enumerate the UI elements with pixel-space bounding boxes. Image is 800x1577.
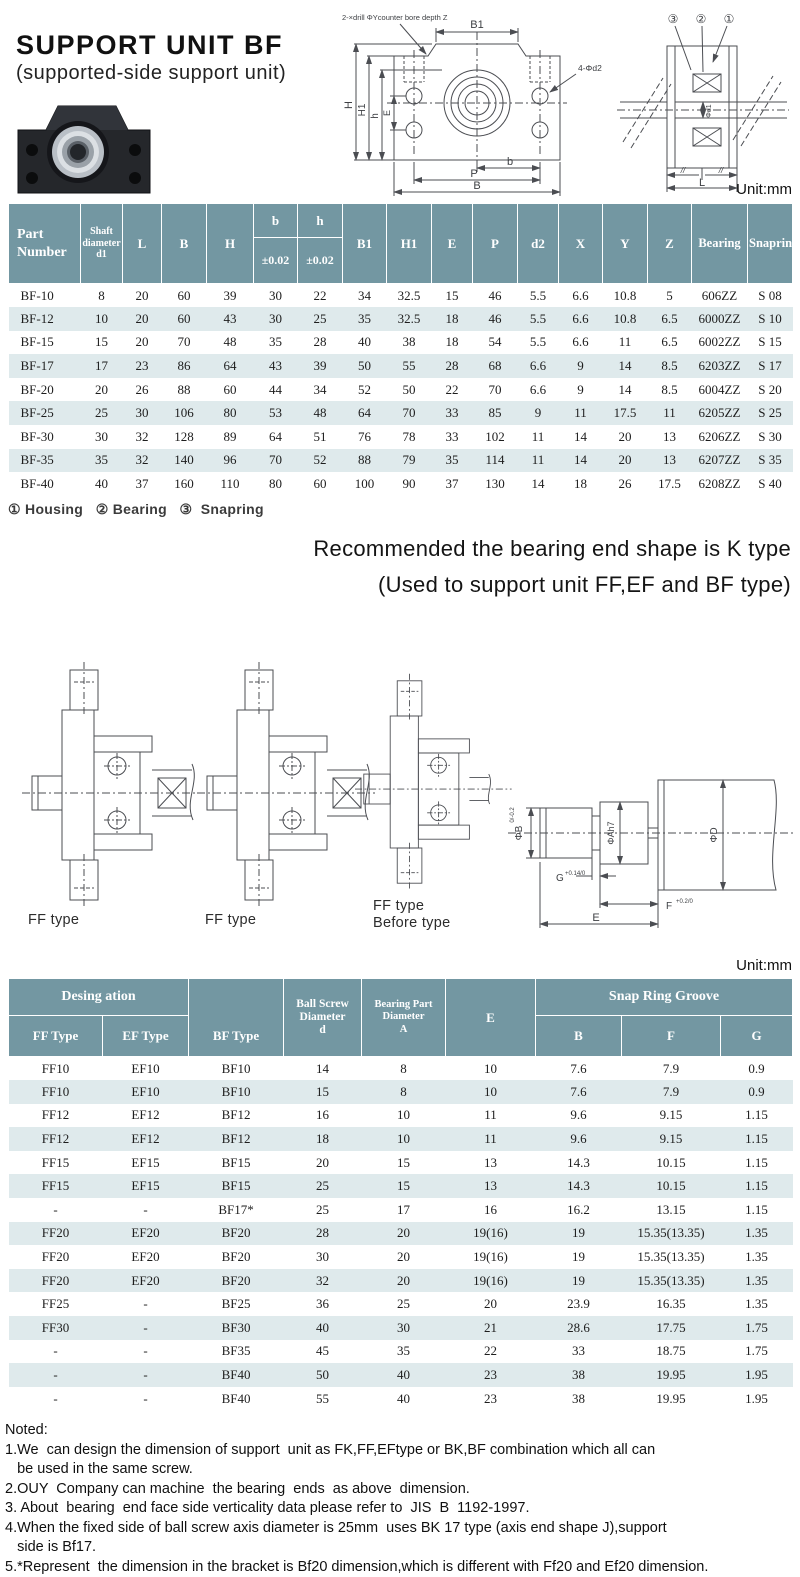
table-cell: 43: [254, 354, 298, 378]
table-cell: 50: [284, 1363, 362, 1387]
table-cell: 14: [603, 354, 648, 378]
col-groove-g: G: [721, 1016, 793, 1057]
page-subtitle: (supported-side support unit): [16, 62, 286, 85]
table-cell: 54: [473, 331, 518, 355]
table-cell: 1.95: [721, 1387, 793, 1411]
table-cell: 30: [284, 1245, 362, 1269]
table-cell: 19.95: [622, 1387, 721, 1411]
table-cell: 76: [343, 425, 387, 449]
table-row: FF12EF12BF121610119.69.151.15: [9, 1104, 793, 1128]
table-cell: FF20: [9, 1222, 103, 1246]
table-cell: BF-17: [9, 354, 81, 378]
table-cell: 15: [362, 1174, 446, 1198]
hatch-mark-left: //: [680, 166, 686, 175]
table-cell: 19: [536, 1245, 622, 1269]
dim-label-phi-a: ΦAh7: [606, 821, 616, 844]
table-cell: 19(16): [446, 1222, 536, 1246]
ff-type-label-1: FF type: [28, 912, 79, 929]
drill-note: 2-×drill ΦYcounter bore depth Z: [342, 13, 448, 22]
col-b-tolerance: ±0.02: [254, 238, 298, 284]
table-row: FF12EF12BF121810119.69.151.15: [9, 1127, 793, 1151]
table-cell: FF10: [9, 1057, 103, 1081]
table-cell: 33: [536, 1340, 622, 1364]
table-cell: 19(16): [446, 1245, 536, 1269]
table-cell: 14: [603, 378, 648, 402]
col-b-small: b: [254, 204, 298, 238]
table-cell: BF-15: [9, 331, 81, 355]
recommendation-line-1: Recommended the bearing end shape is K t…: [0, 531, 791, 567]
table-cell: 55: [284, 1387, 362, 1411]
table-cell: 15: [432, 284, 473, 308]
table-cell: FF10: [9, 1080, 103, 1104]
table-cell: 6206ZZ: [692, 425, 748, 449]
table-cell: 606ZZ: [692, 284, 748, 308]
table-cell: 43: [207, 307, 254, 331]
table-cell: S 10: [748, 307, 793, 331]
col-p: P: [473, 204, 518, 284]
table-cell: 0.9: [721, 1080, 793, 1104]
table-row: --BF17*25171616.213.151.15: [9, 1198, 793, 1222]
table-cell: 7.9: [622, 1057, 721, 1081]
table-cell: 70: [473, 378, 518, 402]
table-cell: 64: [254, 425, 298, 449]
table-cell: 88: [162, 378, 207, 402]
dim-label-p: P: [470, 168, 477, 180]
table-cell: EF20: [103, 1269, 189, 1293]
table-cell: 22: [432, 378, 473, 402]
table-cell: 20: [603, 449, 648, 473]
table-cell: 44: [254, 378, 298, 402]
table-cell: 1.15: [721, 1151, 793, 1175]
table-cell: 20: [123, 307, 162, 331]
table-cell: 20: [123, 284, 162, 308]
table-cell: 130: [473, 472, 518, 496]
col-e: E: [432, 204, 473, 284]
table-cell: 9.15: [622, 1104, 721, 1128]
recommendation-text: Recommended the bearing end shape is K t…: [0, 531, 791, 603]
table-cell: 48: [207, 331, 254, 355]
table-row: FF10EF10BF10158107.67.90.9: [9, 1080, 793, 1104]
dim-label-d1: Φd1: [706, 104, 713, 117]
table-cell: EF12: [103, 1127, 189, 1151]
dim-label-g: G: [556, 873, 564, 884]
table-cell: 14.3: [536, 1174, 622, 1198]
table-row: FF25-BF2536252023.916.351.35: [9, 1292, 793, 1316]
table-cell: 40: [284, 1316, 362, 1340]
table-cell: 15: [284, 1080, 362, 1104]
table-cell: BF35: [189, 1340, 284, 1364]
table-cell: 37: [432, 472, 473, 496]
table-cell: 70: [254, 449, 298, 473]
table-cell: EF12: [103, 1104, 189, 1128]
table-cell: BF40: [189, 1363, 284, 1387]
table-cell: 36: [284, 1292, 362, 1316]
col-l: L: [123, 204, 162, 284]
col-y: Y: [603, 204, 648, 284]
table-cell: 32: [123, 449, 162, 473]
table-cell: S 40: [748, 472, 793, 496]
table-row: BF-4040371601108060100903713014182617.56…: [9, 472, 793, 496]
table-cell: 11: [559, 401, 603, 425]
col-ff-type: FF Type: [9, 1016, 103, 1057]
table-cell: 5.5: [518, 307, 559, 331]
table-cell: -: [9, 1340, 103, 1364]
table-cell: 60: [298, 472, 343, 496]
table-cell: BF-35: [9, 449, 81, 473]
table-cell: BF-30: [9, 425, 81, 449]
table-cell: 32.5: [387, 307, 432, 331]
table-cell: 20: [362, 1222, 446, 1246]
table-cell: BF10: [189, 1057, 284, 1081]
table-cell: 15: [81, 331, 123, 355]
table-cell: 13: [648, 425, 692, 449]
dimension-table: Part Number Shaft diameter d1 L B H b h …: [8, 203, 793, 496]
table-cell: 20: [284, 1151, 362, 1175]
table-cell: 18: [559, 472, 603, 496]
table-cell: 15.35(13.35): [622, 1269, 721, 1293]
table-cell: 25: [81, 401, 123, 425]
table-cell: 19: [536, 1269, 622, 1293]
table-row: BF-15152070483528403818545.56.6116.56002…: [9, 331, 793, 355]
table-cell: S 35: [748, 449, 793, 473]
table-cell: 6.5: [648, 331, 692, 355]
table-cell: -: [103, 1340, 189, 1364]
col-bf-type-spacer: [189, 979, 284, 1016]
table-cell: 25: [362, 1292, 446, 1316]
table-cell: 9.15: [622, 1127, 721, 1151]
page-title: SUPPORT UNIT BF: [16, 30, 283, 61]
table-cell: 20: [81, 378, 123, 402]
table-row: BF-121020604330253532.518465.56.610.86.5…: [9, 307, 793, 331]
table-cell: 25: [284, 1198, 362, 1222]
table-cell: FF12: [9, 1104, 103, 1128]
table-cell: 86: [162, 354, 207, 378]
table-cell: 21: [446, 1316, 536, 1340]
table-cell: 10: [446, 1080, 536, 1104]
dim-label-e2: E: [592, 912, 599, 924]
hole-note: 4-Φd2: [578, 63, 602, 73]
table-cell: 30: [254, 307, 298, 331]
table-cell: BF-10: [9, 284, 81, 308]
table-cell: 32.5: [387, 284, 432, 308]
table-cell: 9: [559, 354, 603, 378]
table-row: FF30-BF3040302128.617.751.75: [9, 1316, 793, 1340]
note-line: 3. About bearing end face side verticali…: [5, 1499, 797, 1519]
table-cell: 23: [446, 1387, 536, 1411]
table-cell: 8: [362, 1057, 446, 1081]
table-cell: 1.15: [721, 1127, 793, 1151]
shaft-end-detail: ΦB 0/-0.2 ΦAh7 ΦD G +0.14/0 F +0.2/0 E: [508, 780, 793, 928]
table-cell: 6203ZZ: [692, 354, 748, 378]
table-cell: 1.15: [721, 1174, 793, 1198]
table-cell: 0.9: [721, 1057, 793, 1081]
designation-table-header: Desing ation Ball Screw Diameter d Beari…: [9, 979, 793, 1057]
table-cell: 14: [559, 449, 603, 473]
table-cell: 17.5: [603, 401, 648, 425]
dim-label-phi-b: ΦB: [514, 825, 525, 840]
table-cell: EF10: [103, 1080, 189, 1104]
table-cell: 15.35(13.35): [622, 1245, 721, 1269]
table-cell: 10.15: [622, 1151, 721, 1175]
table-cell: 46: [473, 307, 518, 331]
table-cell: 19.95: [622, 1363, 721, 1387]
table-cell: 80: [207, 401, 254, 425]
dim-label-b1: B1: [470, 19, 483, 31]
table-cell: 70: [387, 401, 432, 425]
table-cell: 68: [473, 354, 518, 378]
ff-unit-before-type: [355, 674, 512, 890]
table-cell: 28.6: [536, 1316, 622, 1340]
table-cell: 96: [207, 449, 254, 473]
table-cell: 60: [162, 284, 207, 308]
col-shaft-diameter: Shaft diameter d1: [81, 204, 123, 284]
table-cell: 8.5: [648, 354, 692, 378]
notes-list: 1.We can design the dimension of support…: [5, 1441, 797, 1577]
col-bearing: Bearing: [692, 204, 748, 284]
table-cell: BF-12: [9, 307, 81, 331]
table-cell: 88: [343, 449, 387, 473]
table-cell: 11: [446, 1104, 536, 1128]
table-cell: 100: [343, 472, 387, 496]
designation-table-body: FF10EF10BF10148107.67.90.9FF10EF10BF1015…: [9, 1057, 793, 1411]
table-cell: BF12: [189, 1127, 284, 1151]
table-cell: 10.15: [622, 1174, 721, 1198]
parts-footnote: ① Housing ② Bearing ③ Snapring: [8, 501, 264, 518]
table-cell: 52: [343, 378, 387, 402]
table-row: BF-2525301068053486470338591117.5116205Z…: [9, 401, 793, 425]
table-cell: 16.35: [622, 1292, 721, 1316]
table-cell: 70: [162, 331, 207, 355]
dim-label-h-cap: H: [343, 101, 355, 109]
dim-label-h1: H1: [357, 103, 368, 116]
table-cell: 160: [162, 472, 207, 496]
table-cell: 60: [162, 307, 207, 331]
table-cell: 28: [298, 331, 343, 355]
table-cell: BF-25: [9, 401, 81, 425]
table-cell: BF-20: [9, 378, 81, 402]
table-row: FF10EF10BF10148107.67.90.9: [9, 1057, 793, 1081]
table-cell: 17.5: [648, 472, 692, 496]
table-cell: FF20: [9, 1269, 103, 1293]
recommendation-line-2: (Used to support unit FF,EF and BF type): [0, 567, 791, 603]
table-cell: 17: [362, 1198, 446, 1222]
table-cell: EF15: [103, 1174, 189, 1198]
table-cell: 46: [473, 284, 518, 308]
table-cell: BF25: [189, 1292, 284, 1316]
table-cell: -: [103, 1292, 189, 1316]
col-part-number: Part Number: [9, 204, 81, 284]
table-cell: 10.8: [603, 307, 648, 331]
notes-section: Noted: 1.We can design the dimension of …: [5, 1421, 797, 1577]
table-cell: 16.2: [536, 1198, 622, 1222]
table-cell: 35: [432, 449, 473, 473]
table-cell: 34: [298, 378, 343, 402]
col-b: B: [162, 204, 207, 284]
table-row: BF-353532140967052887935114111420136207Z…: [9, 449, 793, 473]
table-cell: 18: [284, 1127, 362, 1151]
table-cell: 5: [648, 284, 692, 308]
table-cell: 20: [362, 1245, 446, 1269]
col-snapring: Snapring: [748, 204, 793, 284]
table-cell: 38: [536, 1363, 622, 1387]
note-line: 4.When the fixed side of ball screw axis…: [5, 1519, 797, 1539]
table-cell: 16: [446, 1198, 536, 1222]
table-cell: 13: [446, 1174, 536, 1198]
table-cell: 9.6: [536, 1104, 622, 1128]
table-cell: 79: [387, 449, 432, 473]
table-cell: 23: [123, 354, 162, 378]
table-cell: FF15: [9, 1174, 103, 1198]
col-h-small: h: [298, 204, 343, 238]
table-cell: 10: [81, 307, 123, 331]
table-cell: 50: [343, 354, 387, 378]
col-designation: Desing ation: [9, 979, 189, 1016]
table-cell: 6.6: [559, 331, 603, 355]
table-cell: 34: [343, 284, 387, 308]
table-cell: 1.15: [721, 1104, 793, 1128]
table-cell: 13.15: [622, 1198, 721, 1222]
col-bearing-part-diameter: Bearing Part Diameter A: [362, 979, 446, 1057]
table-cell: 48: [298, 401, 343, 425]
table-cell: 16: [284, 1104, 362, 1128]
table-cell: 40: [362, 1387, 446, 1411]
table-cell: 15: [362, 1151, 446, 1175]
table-cell: 6.6: [559, 284, 603, 308]
table-cell: 89: [207, 425, 254, 449]
table-row: BF-17172386644339505528686.69148.56203ZZ…: [9, 354, 793, 378]
table-cell: 22: [298, 284, 343, 308]
table-cell: 11: [446, 1127, 536, 1151]
table-cell: 15.35(13.35): [622, 1222, 721, 1246]
table-row: --BF354535223318.751.75: [9, 1340, 793, 1364]
table-cell: 22: [446, 1340, 536, 1364]
hatch-mark-right: //: [718, 166, 724, 175]
table-cell: S 30: [748, 425, 793, 449]
table-cell: 5.5: [518, 284, 559, 308]
table-cell: 30: [362, 1316, 446, 1340]
callout-1: ①: [724, 12, 735, 26]
table-cell: 30: [254, 284, 298, 308]
col-snap-ring-groove: Snap Ring Groove: [536, 979, 793, 1016]
table-cell: BF15: [189, 1174, 284, 1198]
dim-label-h-small: h: [370, 113, 381, 119]
datasheet-page: SUPPORT UNIT BF (supported-side support …: [0, 0, 800, 1577]
table-cell: 35: [81, 449, 123, 473]
table-cell: 26: [603, 472, 648, 496]
table-cell: 106: [162, 401, 207, 425]
col-z: Z: [648, 204, 692, 284]
table-cell: 11: [648, 401, 692, 425]
table-cell: 45: [284, 1340, 362, 1364]
table-cell: 19: [536, 1222, 622, 1246]
table-cell: 53: [254, 401, 298, 425]
table-cell: 10.8: [603, 284, 648, 308]
col-ef-type: EF Type: [103, 1016, 189, 1057]
table-cell: EF20: [103, 1245, 189, 1269]
table-cell: 35: [362, 1340, 446, 1364]
table-cell: 13: [446, 1151, 536, 1175]
table-cell: BF20: [189, 1269, 284, 1293]
table-cell: FF30: [9, 1316, 103, 1340]
note-line: 1.We can design the dimension of support…: [5, 1441, 797, 1461]
table-cell: 10: [362, 1104, 446, 1128]
table-cell: 110: [207, 472, 254, 496]
table-cell: FF25: [9, 1292, 103, 1316]
table-cell: 25: [298, 307, 343, 331]
table-cell: BF17*: [189, 1198, 284, 1222]
table-cell: 11: [518, 449, 559, 473]
table-cell: 38: [387, 331, 432, 355]
table-cell: 18.75: [622, 1340, 721, 1364]
table-cell: BF12: [189, 1104, 284, 1128]
table-cell: EF20: [103, 1222, 189, 1246]
table-cell: 23: [446, 1363, 536, 1387]
table-cell: 10: [446, 1057, 536, 1081]
table-cell: 40: [81, 472, 123, 496]
table-cell: 14.3: [536, 1151, 622, 1175]
table-cell: EF10: [103, 1057, 189, 1081]
table-cell: 6.6: [518, 378, 559, 402]
table-cell: 8: [362, 1080, 446, 1104]
col-e2: E: [446, 979, 536, 1057]
table-cell: 1.75: [721, 1340, 793, 1364]
table-row: BF-20202688604434525022706.69148.56004ZZ…: [9, 378, 793, 402]
table-cell: 19(16): [446, 1269, 536, 1293]
table-cell: 6.6: [518, 354, 559, 378]
table-row: FF15EF15BF1525151314.310.151.15: [9, 1174, 793, 1198]
table-cell: 9.6: [536, 1127, 622, 1151]
table-row: BF-303032128896451767833102111420136206Z…: [9, 425, 793, 449]
table-row: --BF405540233819.951.95: [9, 1387, 793, 1411]
table-cell: S 17: [748, 354, 793, 378]
table-row: --BF405040233819.951.95: [9, 1363, 793, 1387]
table-cell: S 08: [748, 284, 793, 308]
table-cell: 38: [536, 1387, 622, 1411]
table-cell: -: [103, 1316, 189, 1340]
table-cell: 7.9: [622, 1080, 721, 1104]
table-cell: 17.75: [622, 1316, 721, 1340]
table-cell: 8: [81, 284, 123, 308]
table-cell: 52: [298, 449, 343, 473]
table-cell: 1.35: [721, 1245, 793, 1269]
table-cell: 7.6: [536, 1057, 622, 1081]
table-cell: 28: [284, 1222, 362, 1246]
table-cell: FF15: [9, 1151, 103, 1175]
callout-3: ③: [668, 12, 679, 26]
note-line: be used in the same screw.: [5, 1460, 797, 1480]
table-cell: 1.35: [721, 1222, 793, 1246]
table-cell: 14: [284, 1057, 362, 1081]
table-row: FF20EF20BF20322019(16)1915.35(13.35)1.35: [9, 1269, 793, 1293]
table-cell: 32: [284, 1269, 362, 1293]
table-cell: 64: [343, 401, 387, 425]
table-cell: 1.35: [721, 1292, 793, 1316]
table-cell: 32: [123, 425, 162, 449]
table-cell: 85: [473, 401, 518, 425]
table-cell: S 20: [748, 378, 793, 402]
ff-unit-1: [22, 662, 200, 908]
dim-label-f: F: [666, 901, 672, 912]
table-cell: 11: [603, 331, 648, 355]
table-cell: 39: [298, 354, 343, 378]
table-cell: 20: [123, 331, 162, 355]
table-cell: -: [103, 1198, 189, 1222]
table-cell: 114: [473, 449, 518, 473]
table-cell: 6208ZZ: [692, 472, 748, 496]
table-cell: 51: [298, 425, 343, 449]
table-cell: 90: [387, 472, 432, 496]
dim-label-b-small: b: [507, 156, 513, 168]
